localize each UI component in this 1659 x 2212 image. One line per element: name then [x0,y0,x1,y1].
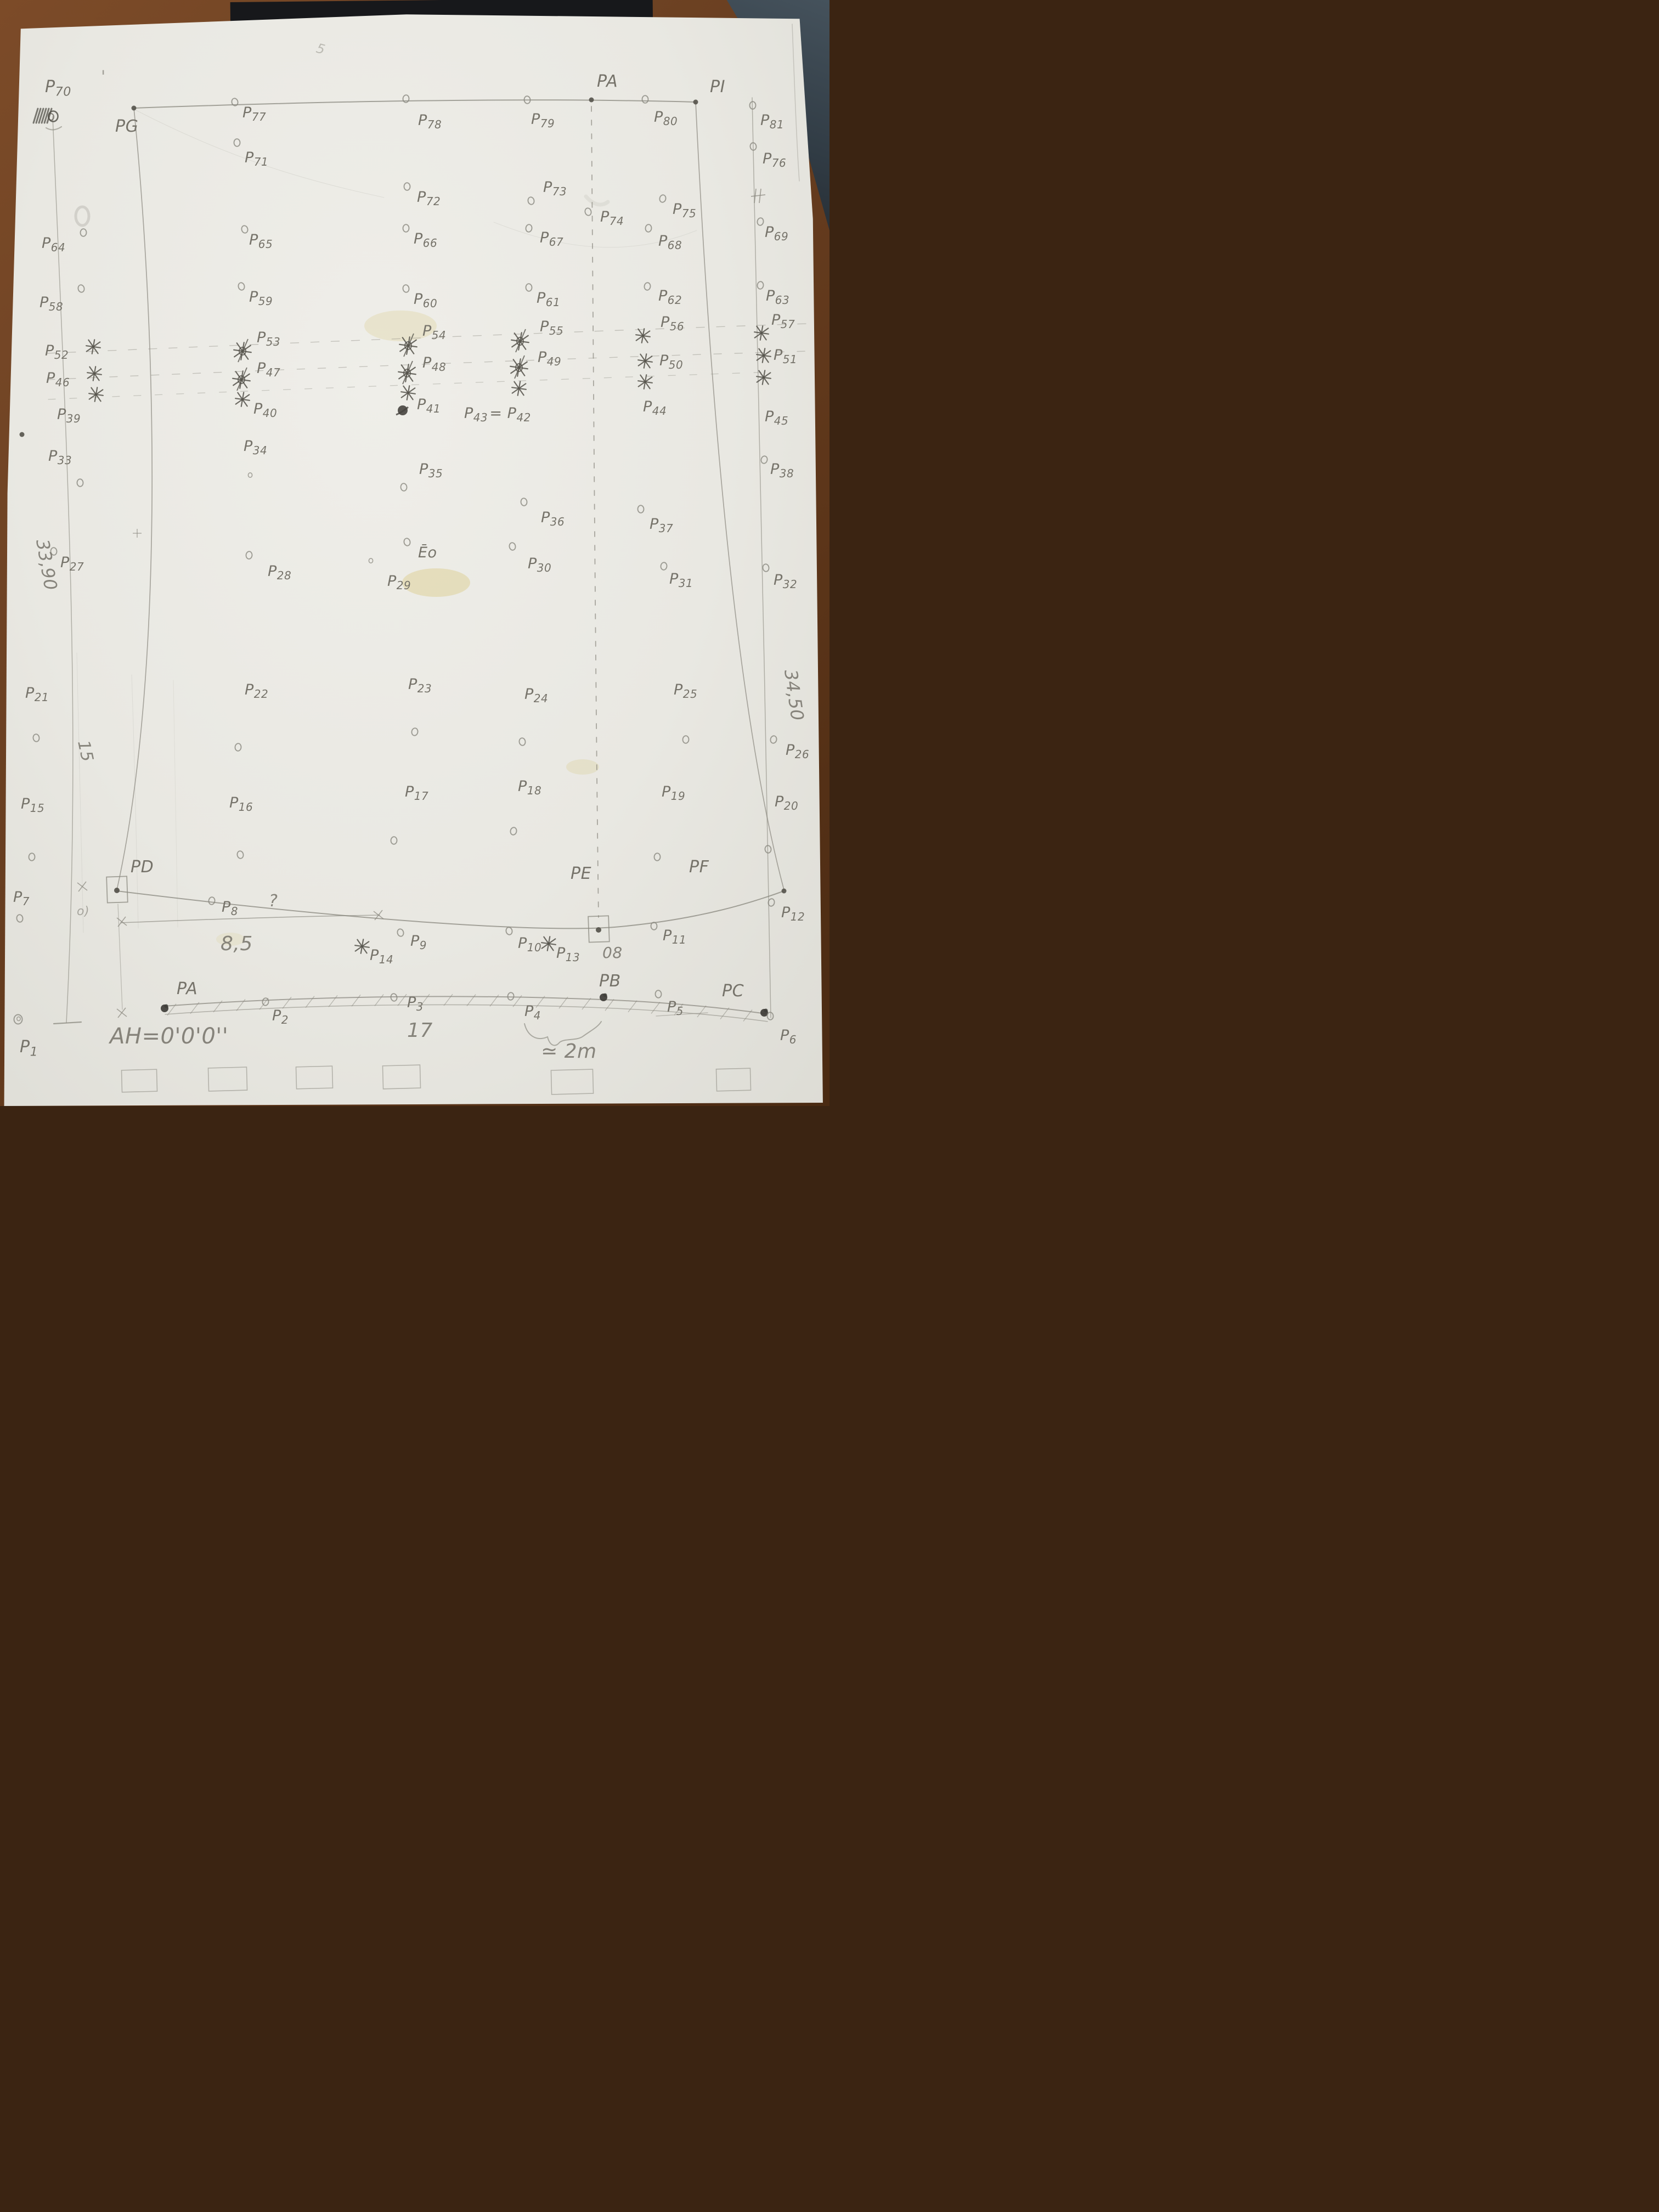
survey-point-P38: P38 [760,455,795,480]
survey-point-P56: P56 [636,314,686,343]
sketch-square [382,1065,420,1089]
point-label-PI: PI [710,77,725,97]
point-label-P6: P6 [780,1027,798,1046]
point-label-P45: P45 [765,408,790,427]
survey-point-P60: P60 [403,284,439,310]
survey-point-P67: P67 [526,224,566,249]
point-label-P34: P34 [244,438,269,457]
survey-point-PB: PB [599,972,621,1001]
photo-scene: P70 PG P77 P71 P78 P72 P79 P73 PA P74 P8… [0,0,830,1106]
survey-point-P2: P2 [262,997,291,1026]
point-label-P66: P66 [414,230,439,250]
point-label-P43P42: P43 = P42 [464,405,533,424]
point-label-PG: PG [115,117,138,136]
point-label-P23: P23 [408,676,433,695]
point-label-P14: P14 [370,947,395,966]
point-label-P69: P69 [765,224,790,243]
survey-point [20,432,25,437]
point-label-P62: P62 [658,287,684,307]
point-label-P46: P46 [46,370,71,389]
hatch-stroke [259,998,268,1009]
point-label-P2: P2 [272,1007,290,1026]
survey-point-P57: P57 [754,312,797,340]
handwritten-text: 17 [407,1019,433,1042]
sketch-paper: P70 PG P77 P71 P78 P72 P79 P73 PA P74 P8… [0,0,830,1106]
point-label-P16: P16 [229,794,255,814]
survey-point [751,189,765,203]
point-label-P28: P28 [268,563,293,582]
point-label-P37: P37 [650,516,675,535]
survey-point-P66: P66 [403,224,439,250]
survey-point-P34: P34 [244,438,269,477]
handwritten-text: ≃ 2m [541,1040,597,1063]
survey-point [117,1008,127,1018]
paper-stain [566,759,599,775]
point-label-P70: P70 [45,77,73,99]
point-label-P80: P80 [654,109,679,128]
survey-point-P39: P39 [57,406,82,425]
survey-point-P33: P33 [48,448,83,487]
point-label-P26: P26 [786,742,811,761]
survey-point-P20: P20 [765,793,800,853]
point-label-P56: P56 [661,314,686,333]
hatch-stroke [398,994,407,1006]
hatch-stroke [628,1001,637,1012]
point-label-P25: P25 [674,681,699,701]
point-label-P8: P8 [222,899,240,918]
handwritten-text: ' [101,67,106,87]
point-label-P55: P55 [540,318,565,337]
point-label-P81: P81 [760,112,786,131]
point-label-P40: P40 [253,400,279,420]
point-label-P27: P27 [60,554,86,573]
point-label-PC: PC [722,981,744,1001]
pencil-line-bottom-line [117,891,784,928]
point-label-P74: P74 [600,208,625,228]
point-label-P39: P39 [57,406,82,425]
point-label-P67: P67 [540,229,565,249]
survey-point [638,375,652,389]
survey-point-P74: P74 [584,207,625,228]
pencil-line-crease-3 [77,653,83,933]
point-label-PF: PF [689,857,709,877]
hatch-stroke [697,1006,706,1017]
point-label-PA: PA [597,72,618,91]
survey-point-PI: PI [693,77,725,105]
hatch-stroke [444,994,453,1006]
point-label-P47: P47 [257,360,282,379]
point-label-P10: P10 [518,935,543,954]
point-label-P60: P60 [414,291,439,310]
sketch-square [551,1069,593,1094]
survey-point-P23: P23 [408,676,433,736]
point-label-P17: P17 [405,783,430,803]
survey-point-P12: P12 [768,898,806,923]
point-label-P13: P13 [556,945,582,964]
survey-point-PA: PA [161,979,198,1012]
survey-point-P47: P47 [233,360,282,391]
sketch-square [716,1068,751,1091]
point-label-P63: P63 [766,287,791,307]
point-label-P15: P15 [21,795,46,815]
handwritten-text: 08 [602,944,623,962]
survey-point-P21: P21 [25,685,50,742]
point-label-P76: P76 [763,150,788,170]
hatch-stroke [720,1008,729,1019]
handwritten-text: 15 [74,738,97,764]
survey-point [512,381,526,396]
survey-point-P10: P10 [505,927,543,954]
point-label-P32: P32 [774,572,799,591]
survey-point-P71: P71 [234,139,270,168]
survey-point [235,392,250,407]
point-label-P58: P58 [39,294,65,313]
point-label-P36: P36 [541,509,566,528]
handwritten-text: 33,90 [32,538,61,592]
point-label-P48: P48 [422,354,448,374]
survey-point-P41: P41 [396,396,442,415]
point-label-PA: PA [177,979,198,998]
pencil-line-pa-pe-dashed [591,106,599,917]
survey-point-P59: P59 [238,282,274,308]
survey-point-P24: P24 [519,686,550,746]
survey-point-P52: P52 [45,340,100,362]
hatch-stroke [605,999,614,1011]
survey-point-P35: P35 [400,461,444,491]
point-label-P64: P64 [42,235,67,254]
survey-point-P13: P13 [541,936,582,964]
survey-point-P11: P11 [651,922,688,946]
point-label-P22: P22 [245,681,270,701]
point-label-P49: P49 [538,349,563,368]
survey-point-P28: P28 [246,551,293,582]
survey-point [133,529,142,538]
survey-point-P64: P64 [42,229,87,254]
handwritten-text: 5 [314,41,326,58]
survey-point-P7: P7 [13,889,31,923]
handwritten-text: ? [269,891,278,911]
point-label-o: Ēo [418,544,437,561]
survey-point-P73: P73 [527,179,568,205]
point-label-P12: P12 [781,904,806,923]
point-label-P53: P53 [257,329,282,348]
point-label-P65: P65 [249,232,274,251]
survey-point-PE: PE [571,864,610,943]
point-label-P18: P18 [518,778,543,797]
survey-point-P32: P32 [763,564,799,591]
point-label-P9: P9 [410,933,428,952]
survey-point-P80: P80 [642,95,679,128]
point-label-P7: P7 [13,889,31,908]
hatch-stroke [582,998,591,1009]
survey-point-P6: P6 [767,1012,798,1046]
point-label-P5: P5 [667,998,685,1018]
pencil-line-p70-underline [46,127,61,130]
survey-point-P18: P18 [510,778,543,836]
point-label-P78: P78 [418,112,443,131]
point-label-PE: PE [571,864,591,883]
sketch-square [121,1069,157,1092]
point-label-P38: P38 [770,461,795,480]
survey-point-P30: P30 [509,542,553,574]
graphite-smudge [76,207,89,225]
survey-point [401,386,415,400]
point-label-P20: P20 [775,793,800,812]
hatch-stroke [375,995,383,1006]
pencil-line-sheet-edge [792,24,799,181]
survey-point-P25: P25 [674,681,699,743]
survey-point-P48: P48 [398,354,448,384]
survey-point-P46: P46 [46,366,101,389]
survey-point-P55: P55 [511,318,565,352]
point-label-P79: P79 [531,111,556,130]
survey-point-P31: P31 [661,562,695,590]
pencil-line-dim85-line [121,915,380,923]
point-label-P19: P19 [662,783,687,803]
point-label-P73: P73 [543,179,568,198]
hatch-stroke [352,995,360,1006]
handwritten-text: 8,5 [221,933,253,955]
point-label-P52: P52 [45,342,70,362]
pencil-line-left-margin-bar [54,1022,81,1024]
point-label-P59: P59 [249,289,274,308]
point-label-PB: PB [599,972,621,991]
hatch-stroke [306,996,314,1008]
point-label-P35: P35 [419,461,444,480]
point-label-P24: P24 [524,686,550,705]
survey-point-PG: PG [115,106,138,137]
survey-point-P22: P22 [235,681,270,751]
point-label-P75: P75 [673,201,698,220]
survey-point-o: Ēo [403,538,437,561]
survey-point-P69: P69 [757,217,790,243]
pencil-line-right-inner [696,102,784,890]
survey-point-P61: P61 [526,284,562,309]
survey-point-P1: P1 [14,1015,40,1059]
point-label-P57: P57 [771,312,797,331]
survey-point-P81: P81 [749,101,786,131]
survey-point-P79: P79 [524,96,557,130]
survey-diagram-svg: P70 PG P77 P71 P78 P72 P79 P73 PA P74 P8… [0,0,830,1106]
survey-point-P29: P29 [369,558,413,592]
point-label-P51: P51 [774,347,799,366]
point-label-P41: P41 [417,396,442,415]
survey-point-PF: PF [689,857,787,894]
point-label-P11: P11 [663,927,688,946]
survey-point-P14: P14 [355,939,395,966]
point-label-P30: P30 [528,555,553,574]
survey-point-P26: P26 [770,735,811,761]
survey-point-P15: P15 [21,795,46,861]
survey-point-P77: P77 [231,98,268,123]
sketch-square [296,1066,332,1089]
survey-point-P40: P40 [253,400,279,420]
survey-point-P63: P63 [757,281,792,307]
survey-point [89,387,103,402]
survey-point-P8: P8 [208,896,240,918]
point-label-P68: P68 [658,233,684,252]
point-label-P72: P72 [417,189,442,208]
point-label-P33: P33 [48,448,74,467]
hatch-stroke [651,1002,660,1014]
survey-point-P17: P17 [391,783,430,844]
survey-point-P62: P62 [644,283,684,307]
survey-point-P53: P53 [234,329,282,362]
handwritten-text: AH=0'0'0'' [108,1024,228,1049]
pencil-line-top-boundary [134,100,696,108]
point-label-P21: P21 [25,685,50,704]
survey-point-P51: P51 [757,347,799,366]
survey-point-P37: P37 [637,505,675,535]
survey-point-PA: PA [589,72,618,103]
point-label-P44: P44 [643,398,668,417]
survey-point-PD: PD [106,857,154,903]
survey-point-P36: P36 [521,498,566,528]
handwritten-text: 34,50 [780,668,808,722]
survey-point-P72: P72 [404,183,442,208]
survey-point-P70: P70 [33,77,73,123]
survey-point-P49: P49 [510,349,563,379]
survey-point-P58: P58 [39,284,85,313]
pencil-line-crease-5 [173,680,178,927]
hatch-stroke [329,995,337,1007]
survey-point-P44: P44 [643,398,668,417]
survey-point-P43P42: P43 = P42 [464,405,533,424]
survey-point-P9: P9 [397,928,428,952]
survey-point-P68: P68 [645,224,684,252]
pencil-line-smudge-pa-line [586,196,608,205]
survey-point-P19: P19 [654,783,687,861]
point-label-P71: P71 [245,149,270,168]
point-label-P1: P1 [20,1037,40,1059]
point-label-P61: P61 [537,290,562,309]
sketch-square [208,1067,247,1091]
point-label-PD: PD [131,857,154,877]
handwritten-text: o) [77,905,89,918]
point-label-P31: P31 [669,571,695,590]
survey-point-P65: P65 [241,225,274,251]
survey-point-P75: P75 [659,194,698,220]
survey-point-P45: P45 [765,408,790,427]
point-label-P77: P77 [242,104,268,123]
survey-point-P76: P76 [750,143,788,170]
survey-point-P16: P16 [229,794,255,859]
